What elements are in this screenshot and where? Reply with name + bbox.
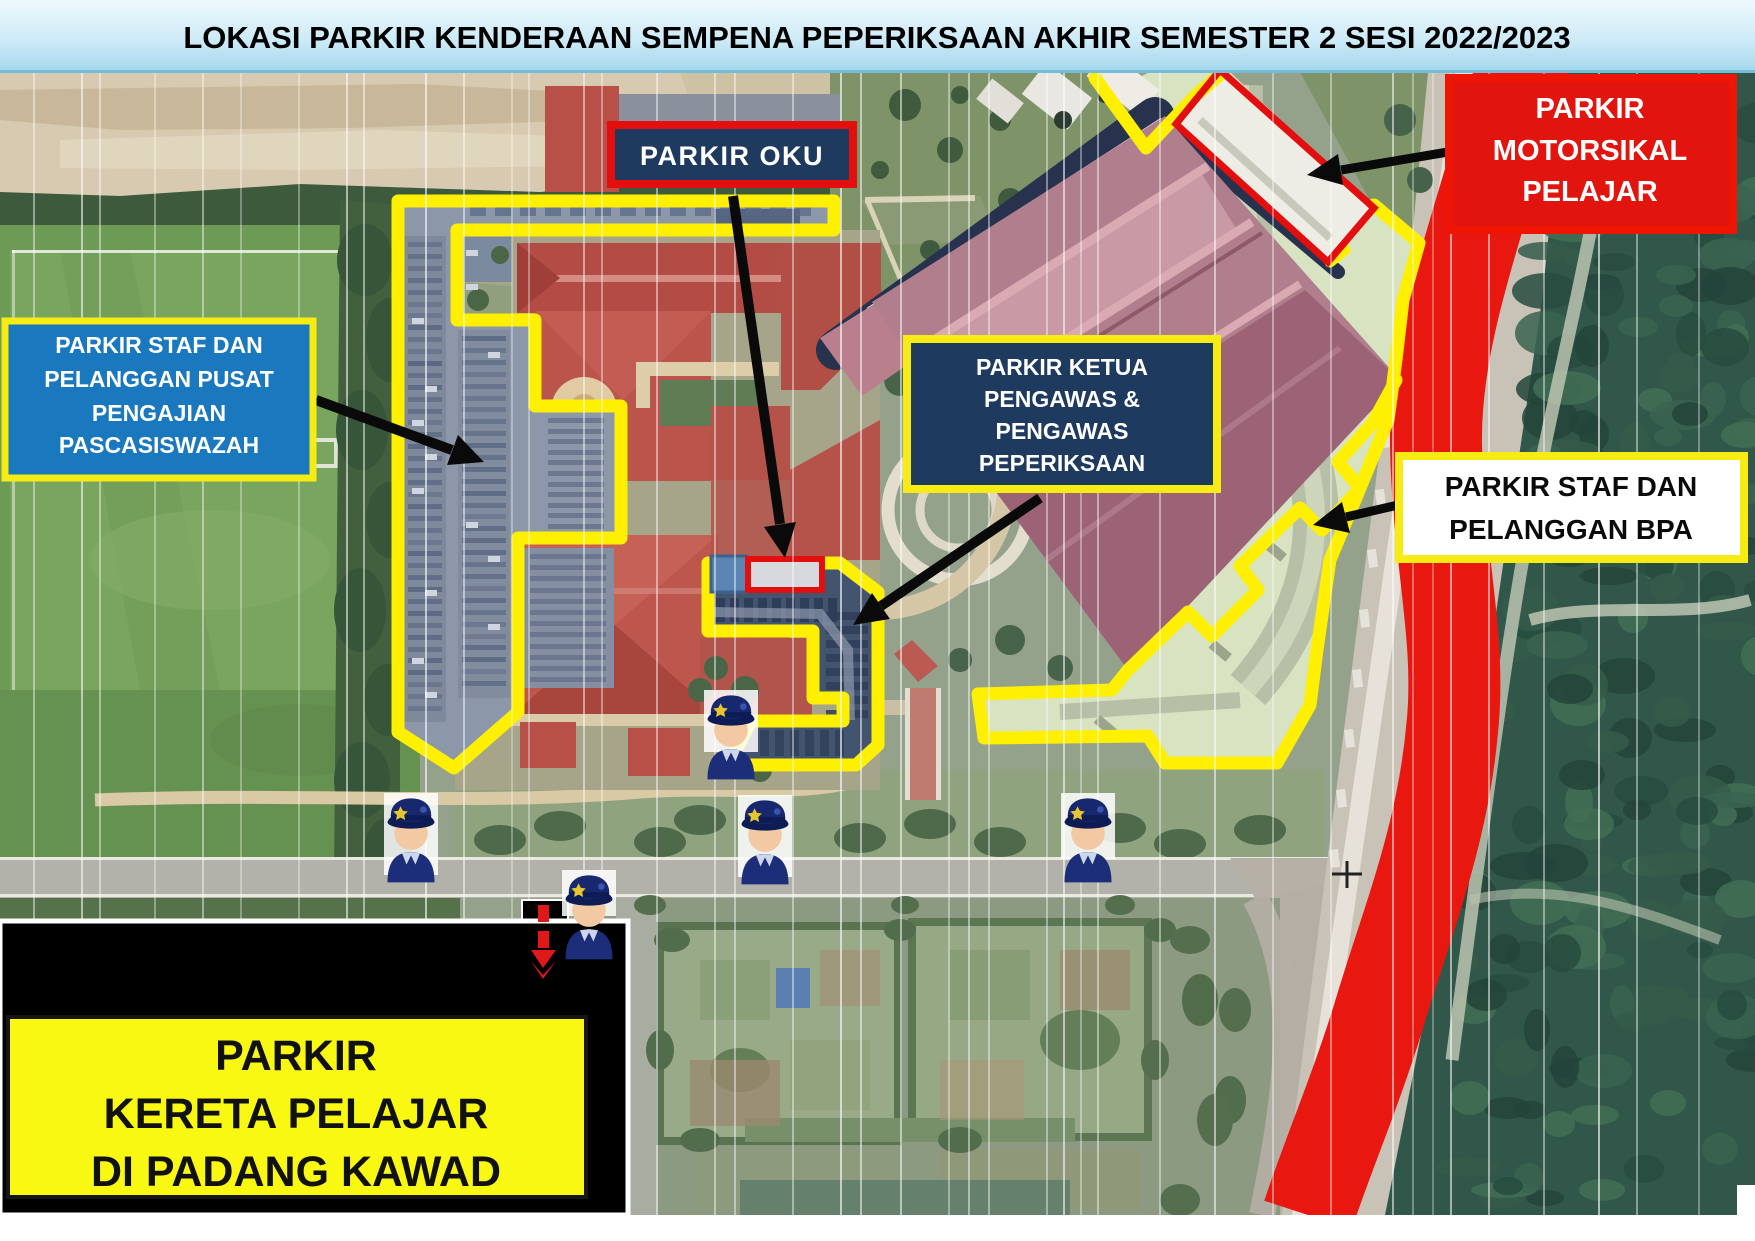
svg-text:PARKIR: PARKIR [1535,93,1644,125]
svg-text:PARKIR OKU: PARKIR OKU [640,141,824,171]
svg-text:PENGAWAS: PENGAWAS [996,418,1129,444]
svg-text:PEPERIKSAAN: PEPERIKSAAN [979,450,1145,476]
svg-text:DI PADANG KAWAD: DI PADANG KAWAD [91,1148,501,1196]
svg-text:PASCASISWAZAH: PASCASISWAZAH [59,432,259,458]
svg-text:MOTORSIKAL: MOTORSIKAL [1493,135,1687,167]
svg-text:PELANGGAN BPA: PELANGGAN BPA [1449,514,1693,545]
svg-text:PENGAJIAN: PENGAJIAN [92,400,226,426]
svg-text:PARKIR: PARKIR [215,1032,377,1080]
svg-text:PELAJAR: PELAJAR [1522,176,1657,208]
svg-text:LOKASI PARKIR KENDERAAN SEMPEN: LOKASI PARKIR KENDERAAN SEMPENA PEPERIKS… [183,20,1570,55]
svg-text:PARKIR STAF DAN: PARKIR STAF DAN [1445,471,1698,502]
svg-text:KERETA PELAJAR: KERETA PELAJAR [104,1090,489,1138]
svg-text:PENGAWAS &: PENGAWAS & [984,386,1140,412]
svg-text:PARKIR KETUA: PARKIR KETUA [976,354,1148,380]
svg-text:PARKIR STAF DAN: PARKIR STAF DAN [55,332,262,358]
svg-text:PELANGGAN PUSAT: PELANGGAN PUSAT [44,366,274,392]
